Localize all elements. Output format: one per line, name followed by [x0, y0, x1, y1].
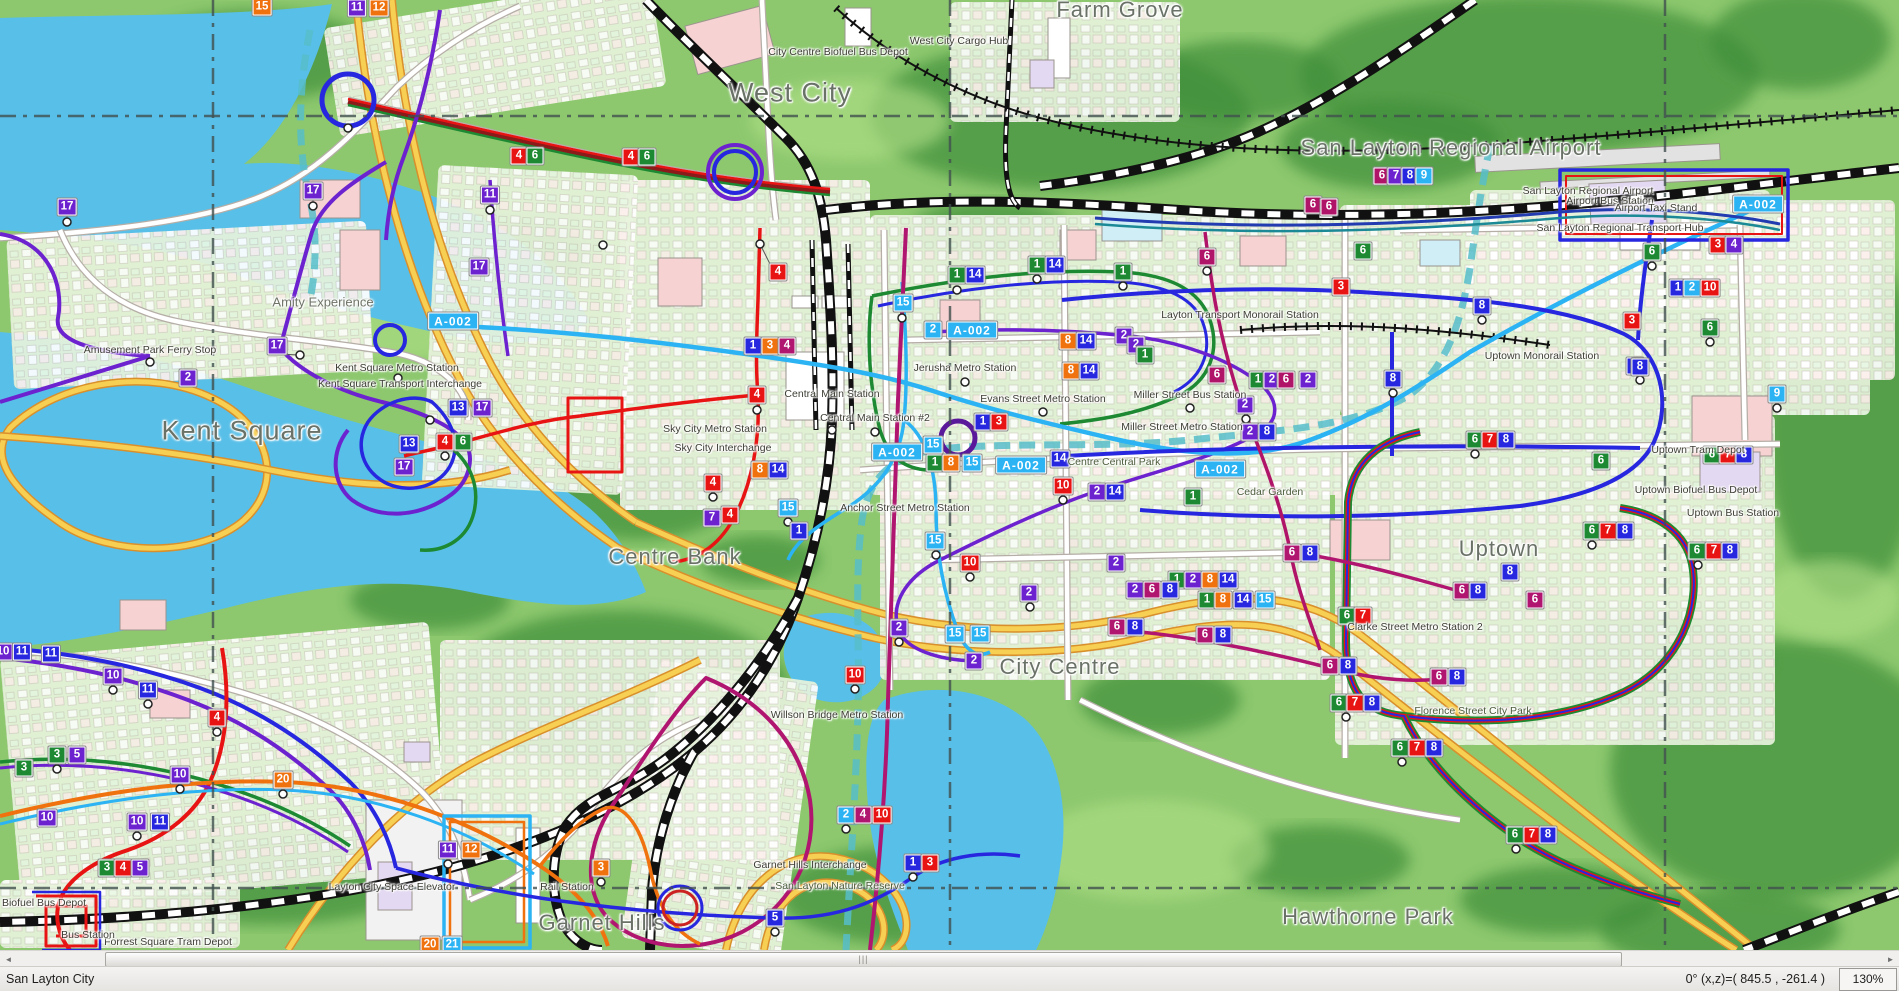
status-location: San Layton City	[0, 972, 1686, 986]
scrollbar-thumb[interactable]: |||	[105, 952, 1622, 967]
scrollbar-right-arrow-icon[interactable]: ►	[1882, 951, 1899, 967]
scrollbar-left-arrow-icon[interactable]: ◄	[0, 951, 17, 967]
horizontal-scrollbar[interactable]: ◄ ||| ►	[0, 950, 1899, 966]
map-canvas[interactable]: 151112464617171121717A-00213174613176789…	[0, 0, 1899, 950]
status-bar: San Layton City 0° (x,z)=( 845.5 , -261.…	[0, 966, 1899, 991]
zoom-level[interactable]: 130%	[1839, 968, 1897, 991]
map-graphics	[0, 0, 1899, 950]
status-coordinates: 0° (x,z)=( 845.5 , -261.4 )	[1686, 972, 1839, 986]
map-viewer-window: 151112464617171121717A-00213174613176789…	[0, 0, 1899, 991]
scrollbar-grip-icon: |||	[858, 955, 868, 964]
